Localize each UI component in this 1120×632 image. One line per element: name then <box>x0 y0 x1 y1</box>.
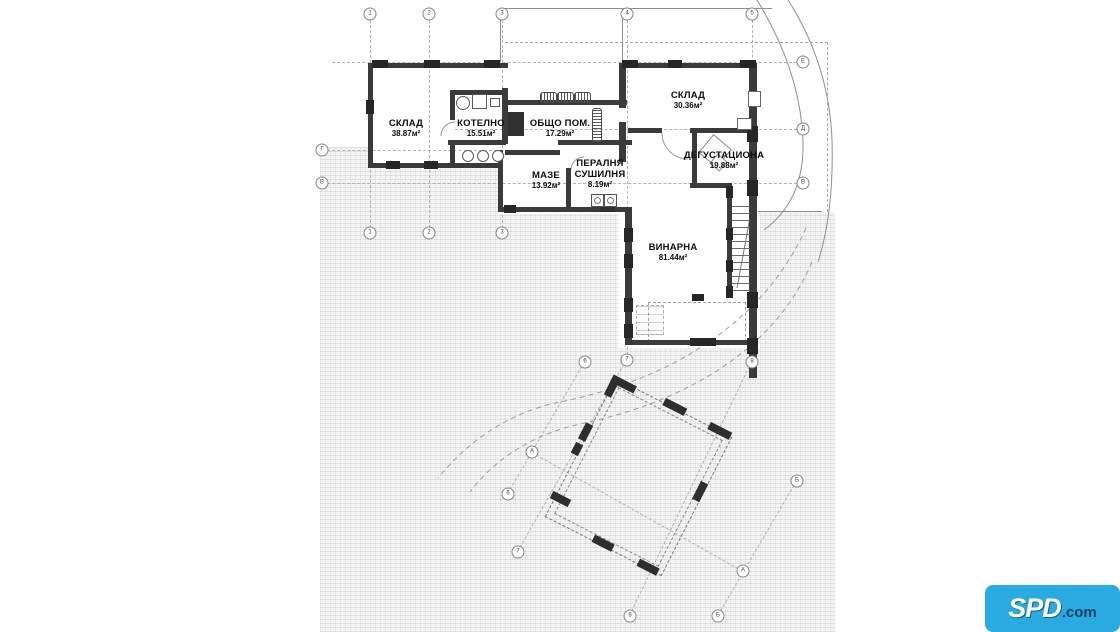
room-name: ОБЩО ПОМ. <box>530 118 591 129</box>
site-boundary-curve-outer <box>788 0 832 262</box>
room-area: 13.92м² <box>532 181 561 190</box>
room-name: СКЛАД <box>671 90 705 101</box>
logo-suffix-text: .com <box>1062 604 1097 621</box>
room-name: ПЕРАЛНЯ <box>575 158 626 169</box>
room-label-sklad-left: СКЛАД 38.87м² <box>389 118 423 138</box>
room-area: 19.88м² <box>684 161 764 170</box>
column <box>386 161 400 169</box>
wc-fixture-icon <box>477 150 489 162</box>
room-area: 81.44м² <box>649 253 698 262</box>
room-name: МАЗЕ <box>532 170 561 181</box>
axis-bubble: 8 <box>624 610 637 623</box>
axis-bubble: 1 <box>364 8 377 21</box>
wc-fixture-icon <box>492 150 504 162</box>
axis-bubble: Г <box>316 144 329 157</box>
column <box>747 180 758 196</box>
room-name: ДЕГУСТАЦИОНА <box>684 150 764 161</box>
axis-bubble: 2 <box>423 227 436 240</box>
mini-steps <box>636 305 664 335</box>
column <box>624 254 633 268</box>
column <box>747 338 758 354</box>
column <box>624 298 633 312</box>
room-label-vinarna: ВИНАРНА 81.44м² <box>649 242 698 262</box>
column <box>726 228 733 240</box>
floor-plan-canvas: СКЛАД 38.87м² КОТЕЛНО 15.51м² ОБЩО ПОМ. … <box>0 0 1120 632</box>
column <box>740 60 756 68</box>
wall <box>368 63 373 168</box>
wall <box>619 63 626 108</box>
column <box>366 100 374 114</box>
wall <box>448 140 506 145</box>
axis-bubble: 1 <box>364 227 377 240</box>
room-label-obshto: ОБЩО ПОМ. 17.29м² <box>530 118 591 138</box>
logo-brand-text: SPD <box>1008 593 1061 624</box>
column <box>747 292 758 308</box>
boiler-icon <box>456 96 470 110</box>
axis-bubble: 7 <box>621 354 634 367</box>
wall <box>450 90 455 120</box>
wall <box>628 128 662 133</box>
room-label-degustaciona: ДЕГУСТАЦИОНА 19.88м² <box>684 150 764 170</box>
wall <box>505 150 560 155</box>
radiator-icon <box>592 108 602 142</box>
staircase <box>732 206 750 292</box>
axis-bubble: А <box>526 446 539 459</box>
axis-bubble: Б <box>791 475 804 488</box>
room-label-maze: МАЗЕ 13.92м² <box>532 170 561 190</box>
column <box>726 186 733 198</box>
axis-bubble: 3 <box>496 8 509 21</box>
axis-bubble: В <box>316 177 329 190</box>
tank-icon <box>472 94 487 109</box>
room-area: 15.51м² <box>457 129 505 138</box>
room-area: 17.29м² <box>530 129 591 138</box>
radiator-icon <box>574 92 591 103</box>
axis-bubble: В <box>797 177 810 190</box>
room-name-line2: СУШИЛНЯ <box>575 169 626 180</box>
column <box>624 324 633 338</box>
duct-shaft <box>508 112 524 136</box>
column <box>726 286 733 298</box>
room-name: ВИНАРНА <box>649 242 698 253</box>
column <box>668 60 682 68</box>
wall <box>566 168 571 212</box>
room-label-peralnya: ПЕРАЛНЯ СУШИЛНЯ 8.19м² <box>575 158 626 189</box>
radiator-icon <box>557 92 574 103</box>
column <box>624 228 633 242</box>
column <box>690 338 716 346</box>
room-area: 30.36м² <box>671 101 705 110</box>
axis-bubble: 5 <box>746 8 759 21</box>
column <box>504 205 516 213</box>
radiator-icon <box>540 92 557 103</box>
fixture-icon <box>490 98 500 107</box>
door-arc-boiler <box>441 122 455 136</box>
wall <box>619 63 757 68</box>
room-name: СКЛАД <box>389 118 423 129</box>
column <box>484 60 500 68</box>
axis-bubble: 7 <box>512 546 525 559</box>
site-boundary-curve-inner <box>757 0 803 230</box>
axis-bubble: 8 <box>746 356 759 369</box>
room-label-sklad-right: СКЛАД 30.36м² <box>671 90 705 110</box>
room-name: КОТЕЛНО <box>457 118 505 129</box>
room-label-kotelno: КОТЕЛНО 15.51м² <box>457 118 505 138</box>
column <box>424 161 438 169</box>
wall-niche <box>737 118 752 130</box>
washer-icon <box>591 194 604 207</box>
axis-bubble: Б <box>712 610 725 623</box>
room-area: 8.19м² <box>575 180 626 189</box>
axis-bubble: 4 <box>621 8 634 21</box>
axis-bubble: 2 <box>423 8 436 21</box>
axis-bubble: Е <box>797 56 810 69</box>
wc-fixture-icon <box>462 150 474 162</box>
axis-bubble: 3 <box>496 227 509 240</box>
axis-bubble: Д <box>797 123 810 136</box>
door-right-wall <box>748 91 761 107</box>
column <box>372 60 388 68</box>
axis-bubble: 6 <box>502 488 515 501</box>
column <box>622 60 638 68</box>
room-area: 38.87м² <box>389 129 423 138</box>
axis-bubble: А <box>737 565 750 578</box>
column <box>726 260 733 272</box>
spd-logo: SPD .com <box>985 585 1120 632</box>
axis-bubble: 6 <box>579 356 592 369</box>
column <box>424 60 440 68</box>
column <box>692 294 704 301</box>
washer-icon <box>604 194 617 207</box>
